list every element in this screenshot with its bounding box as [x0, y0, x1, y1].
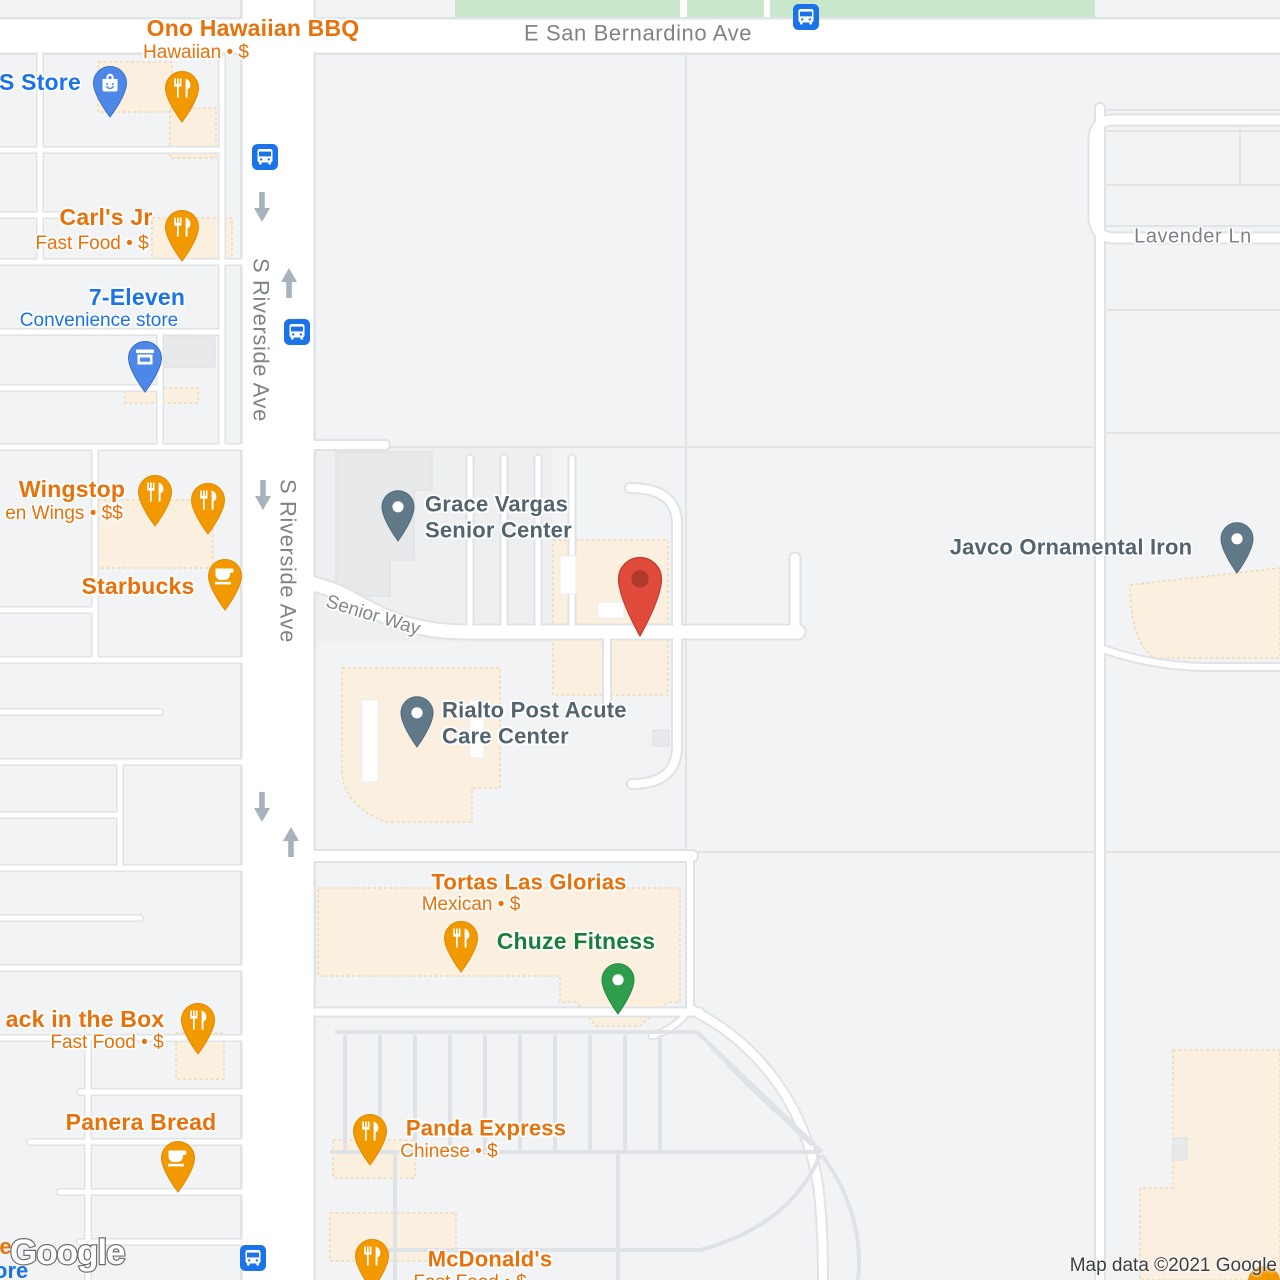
google-logo-text: Google — [10, 1233, 125, 1272]
shopping-bag-pin-s-store[interactable] — [90, 64, 130, 124]
one-way-down-arrow-icon — [254, 192, 270, 227]
poi-sublabel-7-eleven: Convenience store — [20, 311, 178, 331]
cafe-pin-starbucks[interactable] — [205, 557, 245, 617]
poi-label-javco-ornamental-iron[interactable]: Javco Ornamental Iron — [950, 535, 1193, 558]
restaurant-pin-tortas[interactable] — [441, 919, 481, 979]
poi-label-7-eleven[interactable]: 7-Eleven — [89, 285, 185, 309]
one-way-down-arrow-icon — [255, 480, 271, 515]
poi-label-rialto-post-acute-line2[interactable]: Care Center — [442, 724, 569, 747]
one-way-up-arrow-icon — [283, 827, 299, 862]
poi-label-mcdonalds[interactable]: McDonald's — [428, 1247, 553, 1270]
restaurant-pin-wingstop[interactable] — [135, 473, 175, 533]
street-label-san-bernardino: E San Bernardino Ave — [524, 21, 752, 44]
poi-sublabel-jack-in-the-box: Fast Food • $ — [50, 1033, 163, 1053]
poi-sublabel-tortas-las-glorias: Mexican • $ — [422, 895, 521, 915]
poi-label-panda-express[interactable]: Panda Express — [406, 1116, 566, 1139]
poi-sublabel-wingstop: en Wings • $$ — [5, 504, 123, 524]
bus-stop-icon[interactable] — [284, 319, 310, 345]
poi-label-carls-jr[interactable]: Carl's Jr — [60, 205, 153, 229]
poi-sublabel-panda-express: Chinese • $ — [400, 1142, 498, 1162]
bus-stop-icon[interactable] — [252, 144, 278, 170]
dot-pin-chuze-fitness[interactable] — [599, 961, 637, 1021]
poi-label-jack-in-the-box[interactable]: ack in the Box — [6, 1007, 165, 1031]
one-way-down-arrow-icon — [254, 792, 270, 827]
poi-label-s-store[interactable]: S Store — [0, 70, 81, 94]
bus-stop-icon[interactable] — [793, 4, 819, 30]
poi-label-tortas-las-glorias[interactable]: Tortas Las Glorias — [431, 870, 626, 893]
poi-label-rialto-post-acute-line1[interactable]: Rialto Post Acute — [442, 698, 627, 721]
street-label-lavender-ln: Lavender Ln — [1134, 227, 1252, 248]
dot-pin-javco[interactable] — [1218, 520, 1256, 580]
poi-label-grace-vargas-line2[interactable]: Senior Center — [425, 518, 572, 541]
cafe-pin-panera-bread[interactable] — [158, 1139, 198, 1199]
poi-label-wingstop[interactable]: Wingstop — [19, 477, 125, 501]
restaurant-pin-jack-in-the-box[interactable] — [178, 1001, 218, 1061]
poi-label-starbucks[interactable]: Starbucks — [81, 574, 194, 598]
poi-label-panera-bread[interactable]: Panera Bread — [66, 1110, 217, 1134]
restaurant-pin-ono-hawaiian-bbq[interactable] — [162, 69, 202, 129]
street-label-riverside-2: S Riverside Ave — [276, 479, 299, 643]
restaurant-pin-carls-jr[interactable] — [162, 208, 202, 268]
poi-sublabel-mcdonalds: Fast Food • $ — [413, 1273, 526, 1280]
poi-sublabel-ono-hawaiian-bbq: Hawaiian • $ — [143, 43, 249, 63]
dot-pin-grace-vargas[interactable] — [379, 488, 417, 548]
poi-sublabel-carls-jr: Fast Food • $ — [35, 234, 148, 254]
restaurant-pin-unlabeled[interactable] — [188, 481, 228, 541]
street-label-riverside-1: S Riverside Ave — [249, 258, 272, 422]
google-logo[interactable]: Google — [4, 1230, 144, 1280]
one-way-up-arrow-icon — [281, 268, 297, 303]
poi-label-chuze-fitness[interactable]: Chuze Fitness — [497, 929, 656, 953]
poi-label-grace-vargas-line1[interactable]: Grace Vargas — [425, 492, 568, 515]
map-canvas[interactable]: E San Bernardino Ave S Riverside Ave S R… — [0, 0, 1280, 1280]
storefront-pin-7-eleven[interactable] — [125, 339, 165, 399]
dot-pin-rialto-post-acute[interactable] — [398, 694, 436, 754]
restaurant-pin-panda-express[interactable] — [350, 1112, 390, 1172]
restaurant-pin-mcdonalds[interactable] — [352, 1237, 392, 1280]
map-attribution: Map data ©2021 Google — [1070, 1255, 1277, 1277]
bus-stop-icon[interactable] — [240, 1245, 266, 1271]
destination-marker[interactable] — [614, 553, 666, 643]
poi-label-ono-hawaiian-bbq[interactable]: Ono Hawaiian BBQ — [147, 16, 360, 40]
